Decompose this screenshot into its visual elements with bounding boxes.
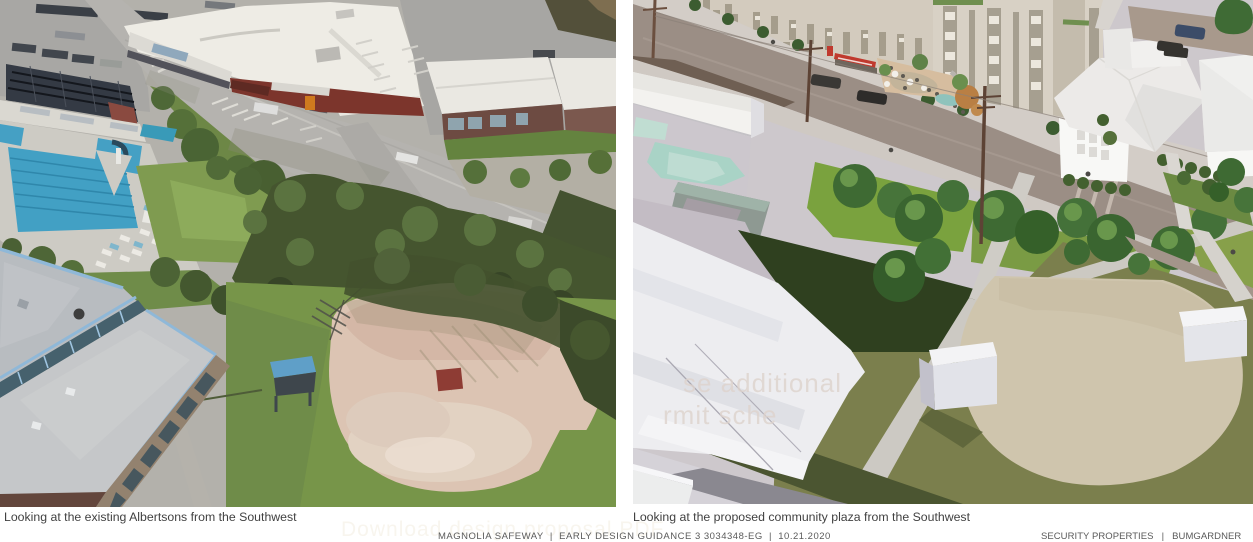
svg-text:rmit sche: rmit sche bbox=[663, 400, 777, 430]
svg-text:se additional: se additional bbox=[683, 368, 842, 398]
